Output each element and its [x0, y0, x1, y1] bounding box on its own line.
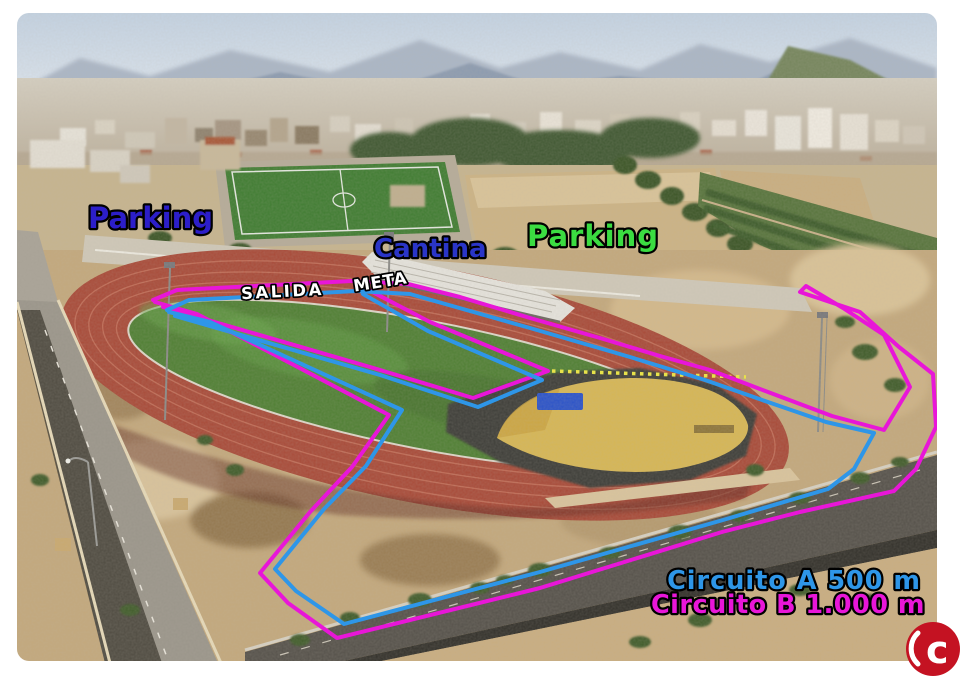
- logo-glyph: c: [926, 628, 949, 672]
- legend-circuit-b: Circuito B 1.000 m: [651, 590, 925, 620]
- annotated-aerial-map: Parking Cantina Parking META SALIDA Circ…: [0, 0, 960, 678]
- aerial-photo: Parking Cantina Parking META SALIDA Circ…: [0, 0, 960, 678]
- tc-logo: c: [906, 622, 960, 676]
- label-parking-right: Parking: [527, 219, 659, 253]
- label-cantina: Cantina: [374, 234, 487, 264]
- photo-grain: [17, 13, 937, 661]
- label-parking-left: Parking: [88, 201, 213, 235]
